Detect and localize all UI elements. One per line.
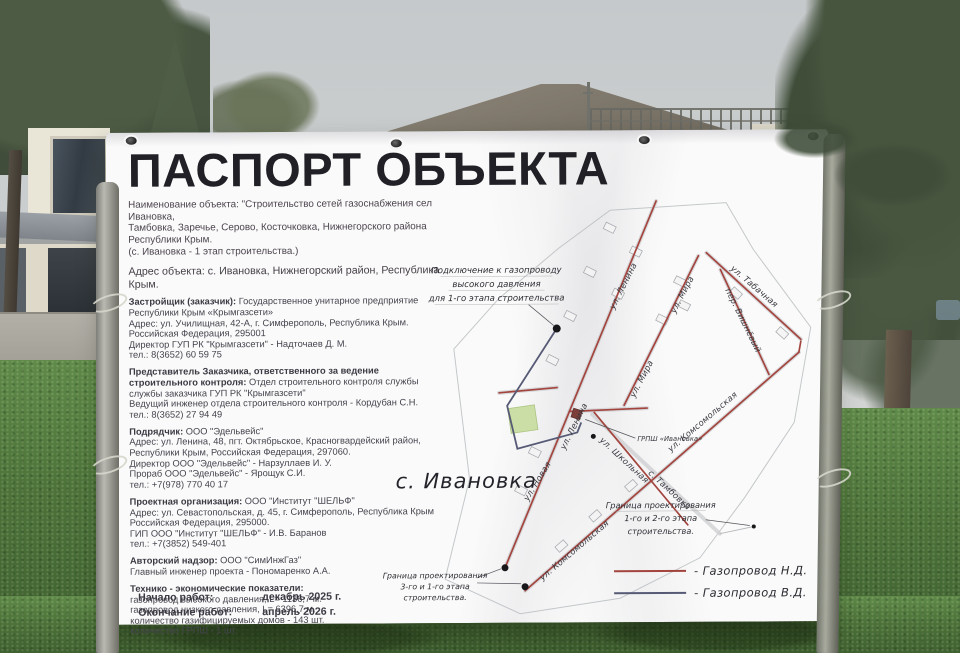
grpsh-marker <box>571 408 582 419</box>
street-label-lenina: ул. Ленина <box>557 401 589 452</box>
highlighted-parcel <box>508 405 538 434</box>
work-dates-block: Начало работ: декабрь 2025 г. Окончание … <box>138 591 341 619</box>
gas-network-nd <box>498 200 802 591</box>
street-label-mira: ул. Мира <box>668 274 696 315</box>
tree-frond <box>828 140 958 210</box>
photo-scene: ПАСПОРТ ОБЪЕКТА Наименование объекта: "С… <box>0 0 960 653</box>
street-label-tabachnaya: ул. Табачная <box>728 262 780 309</box>
legend-label-nd: - Газопровод Н.Д. <box>694 563 808 578</box>
start-date-label: Начало работ: <box>138 591 262 604</box>
gas-network-vd <box>507 328 582 448</box>
grpsh-label: ГРПШ «Ивановка» <box>637 435 702 443</box>
street-label-tambovka: с. Тамбовка <box>646 468 693 512</box>
boundary-outline <box>443 202 812 614</box>
street-label-shkolnaya: ул. Школьная <box>597 434 651 485</box>
note-underlines <box>434 275 705 512</box>
object-address: Адрес объекта: с. Ивановка, Нижнегорский… <box>128 264 464 290</box>
text-line: Тамбовка, Заречье, Серово, Косточковка, … <box>128 221 464 246</box>
end-date-value: апрель 2026 г. <box>262 606 341 618</box>
text-line: Наименование объекта: "Строительство сет… <box>128 198 464 223</box>
text-line: тел.: 8(3652) 27 94 49 <box>129 408 465 420</box>
street-label-lenina: ул. Ленина <box>607 261 639 312</box>
road-to-tambovka <box>720 527 754 534</box>
text-line: Адрес: ул. Севастопольская, д. 45, г. Си… <box>130 506 466 518</box>
connection-note-line: высокого давления <box>452 280 540 290</box>
section-author-supervision: Авторский надзор: ООО "СимИнжГаз" Главны… <box>130 554 466 577</box>
text-line: тел.: 8(3652) 60 59 75 <box>129 348 465 360</box>
text-line: тел.: +7(978) 770 40 17 <box>130 478 466 490</box>
text-line: количество ГРПШ - 1 шт. <box>130 624 466 636</box>
background-object <box>936 300 960 320</box>
section-developer: Застройщик (заказчик): Государственное у… <box>129 295 465 360</box>
section-design-organization: Проектная организация: ООО "Институт "ШЕ… <box>130 495 466 550</box>
legend-label-vd: - Газопровод В.Д. <box>694 585 807 600</box>
antenna-crossbar <box>583 92 593 94</box>
boundary-note-1-2: Граница проектирования <box>606 500 716 511</box>
section-contractor: Подрядчик: ООО "Эдельвейс" Адрес: ул. Ле… <box>129 425 465 490</box>
antenna <box>587 82 590 136</box>
boundary-markers <box>500 324 756 591</box>
text-line: Главный инженер проекта - Пономаренко А.… <box>130 565 466 577</box>
end-date-label: Окончание работ: <box>138 606 262 619</box>
info-column: Наименование объекта: "Строительство сет… <box>128 198 466 637</box>
map-legend: - Газопровод Н.Д. - Газопровод В.Д. <box>614 563 808 600</box>
building-doorway <box>48 248 98 312</box>
text-line: строительного контроля: Отдел строительн… <box>129 376 465 388</box>
start-date-value: декабрь 2025 г. <box>262 591 341 603</box>
boundary-note-1-2: 1-го и 2-го этапа <box>624 513 697 523</box>
object-passport-banner: ПАСПОРТ ОБЪЕКТА Наименование объекта: "С… <box>106 129 832 625</box>
text-line: Ведущий инженер отдела строительного кон… <box>129 397 465 409</box>
map-buildings <box>513 221 790 552</box>
street-label-komsomolskaya: ул. Комсомольская <box>537 518 611 583</box>
street-label-novaya: ул. Новая <box>521 460 553 504</box>
banner-title: ПАСПОРТ ОБЪЕКТА <box>128 140 609 198</box>
street-label-komsomolskaya: ул. Комсомольская <box>665 389 739 454</box>
text-line: тел.: +7(3852) 549-401 <box>130 537 466 549</box>
street-label-mira: ул. Мира <box>627 358 655 399</box>
streets-network <box>498 200 802 591</box>
boundary-note-1-2: строительства. <box>628 526 694 536</box>
section-customer-representative: Представитель Заказчика, ответственного … <box>129 365 465 420</box>
text-line: Застройщик (заказчик): Государственное у… <box>129 295 465 307</box>
left-post <box>96 182 119 653</box>
grommet <box>639 136 650 144</box>
street-label-vishnevyy: пер. Вишнёвый <box>723 286 763 354</box>
object-name-block: Наименование объекта: "Строительство сет… <box>128 198 464 258</box>
text-line: (с. Ивановка - 1 этап строительства.) <box>128 245 464 258</box>
leader-lines <box>476 304 750 584</box>
